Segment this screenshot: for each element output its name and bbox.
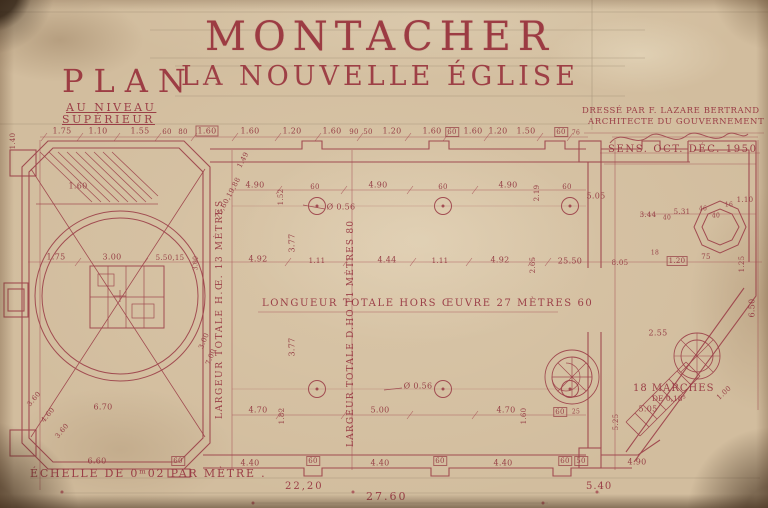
dim-label: 3.00: [102, 253, 121, 262]
dim-label: 1.60: [240, 127, 259, 136]
dim-label: 50: [363, 128, 373, 136]
dim-label: 60: [171, 456, 185, 466]
dim-label: 4.44: [377, 256, 396, 265]
dim-label: 1.11: [432, 257, 449, 265]
dim-label: 3.60: [54, 422, 71, 440]
dim-label: 5.25: [612, 414, 620, 431]
dim-label: 60: [162, 128, 172, 136]
dim-label: 60: [438, 183, 448, 191]
dim-label: 1.60: [322, 127, 341, 136]
dim-label: 1.75: [52, 127, 71, 136]
dim-label: Ø 0.56: [327, 203, 356, 212]
dim-label: 80: [178, 128, 188, 136]
dim-label: 25: [572, 409, 580, 416]
dim-label: 5.31: [674, 208, 691, 216]
dim-label: 8.05: [612, 259, 629, 267]
dim-label: 75,60,19,88: [214, 176, 242, 220]
dim-label: 5.05: [638, 405, 657, 414]
dim-label: 1.20: [667, 256, 688, 266]
dim-label: 4.92: [490, 256, 509, 265]
dim-label: 1.60: [195, 126, 218, 137]
dim-label: 4.90: [368, 181, 387, 190]
dim-label: 1.60: [520, 408, 528, 425]
dim-label: 6.60: [87, 457, 106, 466]
dim-label: Ø 0.56: [404, 382, 433, 391]
dim-label: 60: [558, 456, 572, 466]
dim-label: 4.90: [627, 458, 646, 467]
dim-label: 1.20: [382, 127, 401, 136]
dim-label: 3.00: [193, 256, 200, 271]
dim-label: 60: [306, 456, 320, 466]
dim-label: 1.00: [715, 384, 733, 401]
dim-label: 40: [712, 213, 720, 220]
dim-label: 1.11: [309, 257, 326, 265]
dim-label: 1.60: [463, 127, 482, 136]
dim-label: 1.82: [278, 408, 286, 425]
dim-label: 3.60: [26, 390, 43, 408]
dim-label: 1.50: [516, 127, 535, 136]
dim-label: 50: [574, 456, 588, 466]
dim-label: 4.92: [248, 255, 267, 264]
dim-label: 40: [663, 215, 671, 222]
dim-label: 3.00: [197, 332, 211, 351]
dim-label: 4.40: [240, 459, 259, 468]
dim-label: 46: [699, 206, 707, 213]
dim-label: 6.50: [748, 298, 757, 317]
dim-label: 60: [310, 183, 320, 191]
dim-label: 1.20: [488, 127, 507, 136]
dim-label: 4.60: [40, 406, 57, 424]
dim-label: 4.90: [498, 181, 517, 190]
dim-label: 90: [349, 128, 359, 136]
dim-label: 1.40: [9, 133, 17, 150]
dim-label: 5.05: [586, 192, 605, 201]
dim-label: 5.00: [370, 406, 389, 415]
dim-label: 1.10: [737, 196, 754, 204]
dim-label: 4.70: [496, 406, 515, 415]
dim-label: 3.77: [288, 233, 297, 252]
dim-label: 1.52: [277, 189, 285, 206]
dim-label: 4.90: [245, 181, 264, 190]
dim-label: 7.00: [204, 348, 218, 367]
dim-label: 4.40: [370, 459, 389, 468]
dim-label: 25.50: [558, 257, 582, 266]
dim-label: 1.10: [88, 127, 107, 136]
dim-label: 3.44: [640, 211, 657, 219]
dim-label: 75: [701, 253, 711, 261]
dim-label: 1.49: [236, 151, 251, 170]
dim-label: 1.55: [130, 127, 149, 136]
dim-label: 1.60: [68, 182, 87, 191]
dim-label: 60: [554, 127, 568, 137]
dim-label: 60: [553, 407, 567, 417]
dim-label: 60: [562, 183, 572, 191]
dim-label: 2.55: [648, 329, 667, 338]
dim-label: 4.70: [248, 406, 267, 415]
dim-label: 76: [572, 130, 580, 137]
dim-label: 6.70: [93, 403, 112, 412]
dim-label: 2.65: [529, 257, 537, 274]
dim-label: 2.19: [533, 185, 541, 202]
dim-label: 1.60: [422, 127, 441, 136]
dim-label: 60: [433, 456, 447, 466]
drawing-sheet: MONTACHER LA NOUVELLE ÉGLISE PLAN AU NIV…: [0, 0, 768, 508]
dim-label: 3.77: [288, 337, 297, 356]
dimension-labels: 1.751.101.5560801.601.601.201.6090501.20…: [0, 0, 768, 508]
dim-label: 1.25: [738, 256, 746, 273]
dim-label: 18: [651, 250, 659, 257]
dim-label: 16: [725, 202, 733, 209]
dim-label: 4.40: [493, 459, 512, 468]
dim-label: 1.75: [46, 253, 65, 262]
dim-label: 1.20: [282, 127, 301, 136]
dim-label: 5.50,15: [156, 254, 185, 262]
dim-label: 60: [445, 127, 459, 137]
